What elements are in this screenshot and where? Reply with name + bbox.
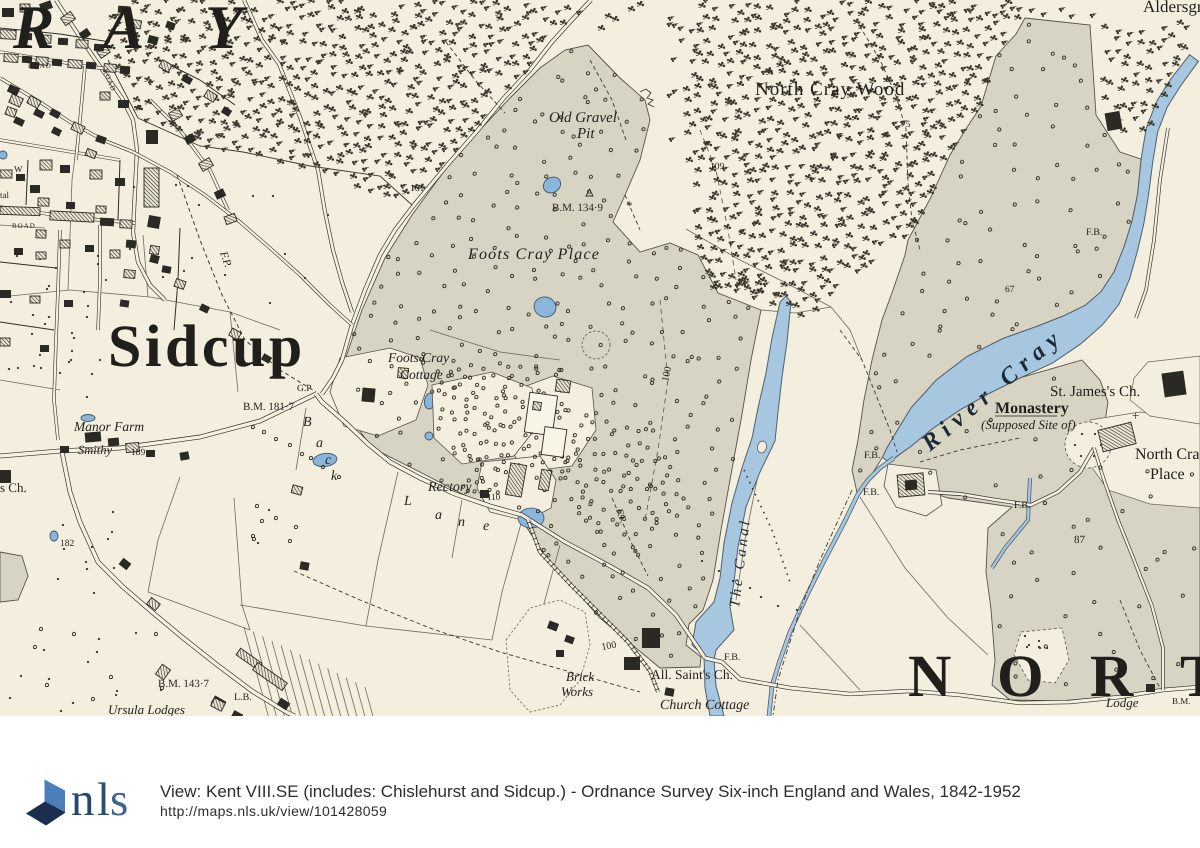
svg-text:67: 67: [1005, 285, 1015, 295]
svg-text:Church Cottage: Church Cottage: [660, 698, 749, 713]
svg-text:Old Gravel: Old Gravel: [549, 110, 617, 126]
svg-text:All. Saint's Ch.: All. Saint's Ch.: [651, 667, 733, 682]
svg-text:a: a: [316, 436, 323, 451]
svg-text:A: A: [99, 0, 144, 62]
svg-text:87: 87: [1074, 534, 1086, 546]
svg-text:F.B.: F.B.: [863, 487, 879, 498]
svg-text:B.M. 134·9: B.M. 134·9: [552, 202, 604, 214]
svg-text:Place: Place: [1150, 466, 1185, 483]
svg-text:Rectory: Rectory: [427, 480, 472, 495]
svg-text:North Cra: North Cra: [1135, 446, 1199, 463]
svg-text:F.B.: F.B.: [1014, 500, 1030, 511]
svg-text:Foots Cray: Foots Cray: [387, 350, 449, 365]
svg-text:n: n: [458, 515, 465, 530]
svg-text:L.B.: L.B.: [234, 692, 252, 703]
svg-text:O: O: [997, 643, 1044, 709]
svg-text:B.M. 181·7: B.M. 181·7: [243, 401, 295, 413]
svg-text:ROAD: ROAD: [12, 222, 36, 230]
svg-text:Monastery: Monastery: [995, 400, 1069, 417]
svg-text:(Supposed Site of): (Supposed Site of): [981, 417, 1076, 432]
svg-text:*: *: [626, 198, 633, 213]
svg-text:North Cray Wood: North Cray Wood: [755, 79, 905, 100]
svg-text:F.B.: F.B.: [1086, 227, 1102, 238]
svg-text:c: c: [325, 453, 332, 468]
svg-text:Pit: Pit: [576, 126, 595, 142]
svg-text:Cottage: Cottage: [400, 367, 443, 382]
svg-text:tal: tal: [0, 190, 9, 200]
svg-text:s Ch.: s Ch.: [0, 480, 27, 495]
svg-text:e: e: [483, 519, 489, 534]
svg-text:Aldersgr: Aldersgr: [1143, 0, 1200, 16]
svg-text:W: W: [14, 164, 23, 174]
svg-text:B: B: [303, 415, 312, 430]
svg-text:Smithy: Smithy: [78, 443, 112, 457]
svg-text:St. James's Ch.: St. James's Ch.: [1050, 384, 1140, 400]
svg-text:182: 182: [60, 539, 75, 549]
svg-text:Sidcup: Sidcup: [108, 313, 306, 379]
svg-text:N: N: [908, 643, 951, 709]
svg-text:Works: Works: [561, 684, 593, 699]
svg-text:161: 161: [410, 184, 425, 194]
svg-text:L: L: [403, 494, 412, 509]
svg-text:k: k: [331, 469, 338, 484]
svg-text:Y: Y: [205, 0, 248, 62]
svg-text:Manor Farm: Manor Farm: [73, 419, 144, 434]
svg-text:Lodge: Lodge: [1105, 695, 1139, 710]
svg-text:+: +: [1132, 408, 1139, 423]
svg-text:Brick: Brick: [566, 669, 594, 684]
svg-text:ROAD: ROAD: [28, 62, 52, 70]
svg-text:G.P: G.P: [297, 384, 312, 394]
svg-text:a: a: [435, 508, 442, 523]
svg-text:F.B.: F.B.: [724, 652, 740, 663]
svg-text:Foots Cray Place: Foots Cray Place: [467, 246, 600, 263]
svg-text:F.B.: F.B.: [864, 450, 880, 461]
svg-text:109: 109: [710, 162, 725, 172]
svg-text:189: 189: [131, 448, 146, 458]
svg-text:B.M.: B.M.: [1172, 696, 1191, 706]
svg-text:R: R: [12, 0, 54, 62]
svg-text:110: 110: [487, 492, 501, 502]
svg-text:75: 75: [901, 120, 911, 130]
svg-text:B.M. 143·7: B.M. 143·7: [158, 678, 210, 690]
svg-text:Ursula Lodges: Ursula Lodges: [108, 702, 185, 716]
